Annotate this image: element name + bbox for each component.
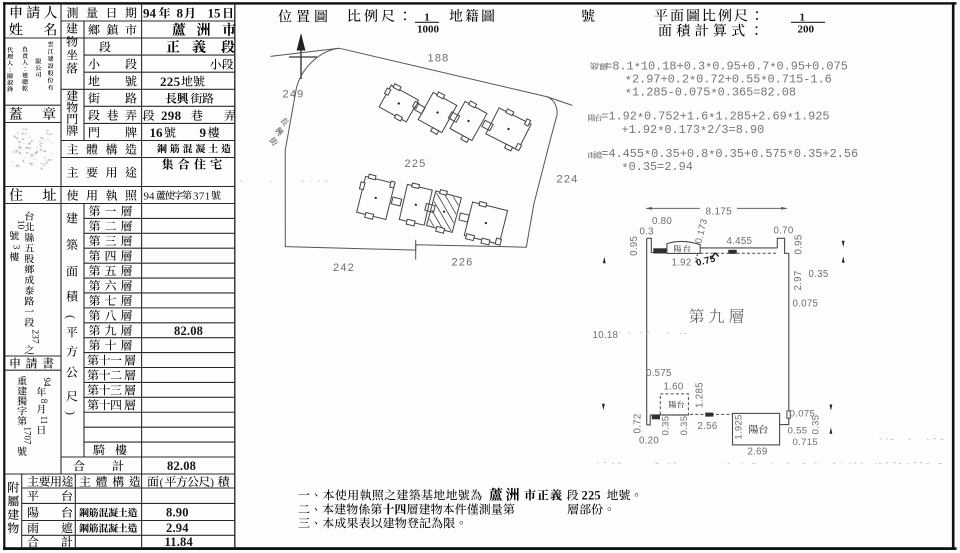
svg-text:(: ( (64, 315, 78, 319)
svg-text:2.97: 2.97 (793, 270, 804, 290)
svg-text:0.72: 0.72 (633, 413, 644, 433)
svg-text:225: 225 (582, 489, 601, 503)
svg-text:249: 249 (283, 89, 305, 101)
svg-text:237: 237 (30, 329, 40, 344)
svg-text:0.3: 0.3 (640, 226, 654, 237)
svg-text:8.175: 8.175 (706, 207, 733, 218)
svg-text:11.84: 11.84 (165, 535, 194, 549)
svg-text:0.20: 0.20 (639, 436, 659, 447)
svg-text:371: 371 (193, 190, 211, 202)
svg-text:11: 11 (39, 416, 49, 425)
svg-text:0.35: 0.35 (679, 416, 690, 436)
svg-text:200: 200 (798, 24, 815, 36)
svg-text:0.80: 0.80 (652, 216, 672, 227)
svg-text:225: 225 (405, 158, 427, 170)
svg-text:0.35: 0.35 (661, 416, 672, 436)
svg-text:82.08: 82.08 (174, 324, 203, 338)
svg-text:2.94: 2.94 (166, 521, 189, 535)
svg-text:10.18: 10.18 (593, 330, 619, 341)
svg-text:224: 224 (557, 174, 579, 186)
svg-text:2.69: 2.69 (748, 446, 768, 457)
svg-text:1.92: 1.92 (672, 257, 692, 268)
svg-text:+1.92*0.173*2/3=8.90: +1.92*0.173*2/3=8.90 (622, 123, 765, 139)
svg-text:94: 94 (144, 190, 156, 202)
svg-text:0.35: 0.35 (811, 415, 822, 435)
svg-text:1: 1 (424, 12, 430, 24)
svg-text:1: 1 (800, 12, 806, 24)
svg-text:8: 8 (39, 399, 49, 404)
svg-text:188: 188 (428, 53, 450, 65)
svg-text:1707: 1707 (23, 427, 33, 446)
svg-text:226: 226 (452, 257, 474, 269)
svg-text:225: 225 (160, 74, 181, 89)
svg-text:): ) (210, 475, 214, 489)
svg-text:10: 10 (15, 220, 25, 230)
svg-text:9: 9 (200, 125, 207, 140)
svg-text:0.95: 0.95 (794, 234, 805, 254)
svg-text:8: 8 (177, 6, 184, 21)
svg-text:*0.35=2.94: *0.35=2.94 (622, 160, 693, 176)
svg-text:4.455: 4.455 (727, 236, 753, 247)
svg-text:1.285: 1.285 (694, 382, 705, 408)
svg-text:0.715: 0.715 (793, 437, 819, 448)
svg-text:0.70: 0.70 (774, 226, 794, 237)
svg-text:1.925: 1.925 (734, 414, 745, 439)
svg-text:0.95: 0.95 (629, 236, 640, 256)
svg-text:16: 16 (150, 125, 164, 140)
svg-text:3: 3 (11, 245, 21, 250)
svg-text:(: ( (160, 475, 164, 489)
svg-text:): ) (64, 411, 78, 415)
svg-text:242: 242 (333, 262, 355, 274)
svg-text:0.35: 0.35 (809, 269, 829, 280)
svg-text:15: 15 (208, 6, 222, 21)
svg-text:0.075: 0.075 (793, 299, 819, 310)
svg-text:298: 298 (161, 108, 182, 123)
svg-text:0.55: 0.55 (788, 425, 808, 436)
svg-text:2.56: 2.56 (698, 421, 718, 432)
svg-text:94: 94 (143, 6, 157, 21)
svg-text:94: 94 (42, 378, 52, 388)
svg-text:*1.285-0.075*0.365=82.08: *1.285-0.075*0.365=82.08 (625, 86, 796, 102)
svg-text:1000: 1000 (417, 24, 440, 36)
svg-text:82.08: 82.08 (167, 459, 196, 473)
svg-text:8.90: 8.90 (166, 506, 189, 520)
svg-text:1.60: 1.60 (664, 381, 684, 392)
svg-text:0.575: 0.575 (646, 368, 672, 379)
